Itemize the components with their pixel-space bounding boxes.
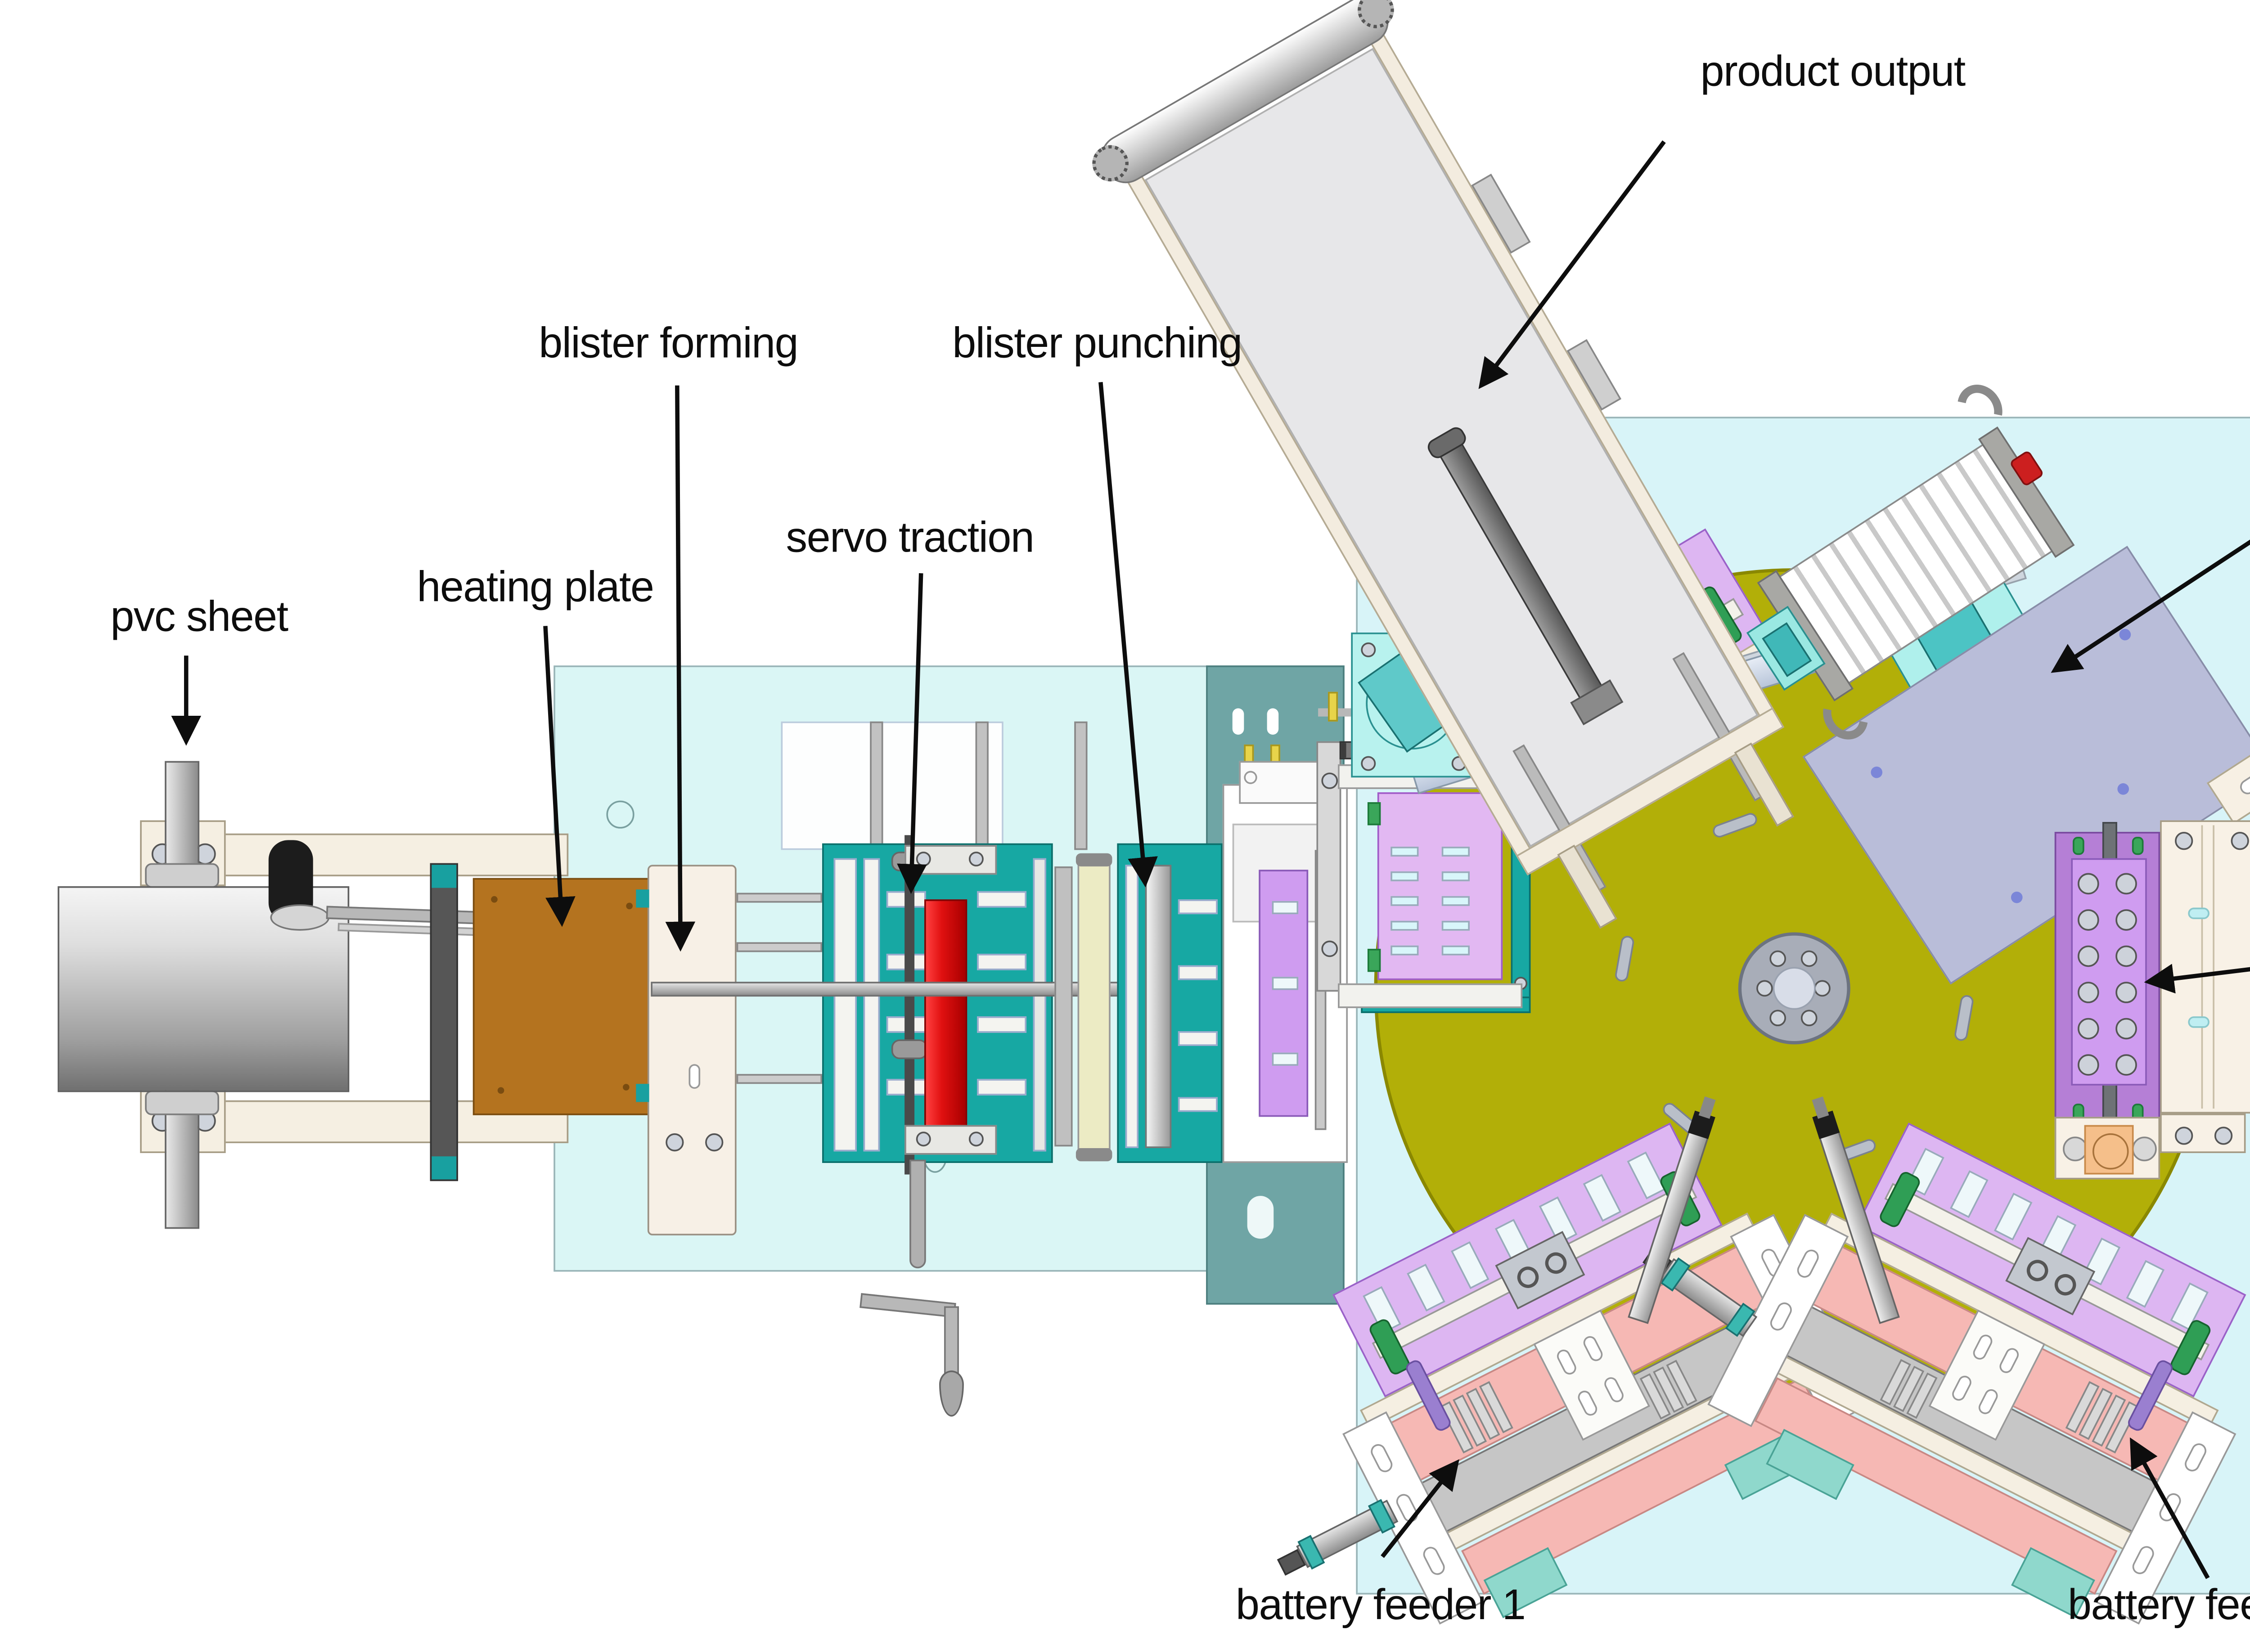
crank-handle [857,1292,972,1423]
label-battery-feeder-2: battery feeder2 [2068,1583,2250,1626]
forming-plate-clip [636,889,649,907]
forming-plate-clip [636,1084,649,1102]
storage-frame [2160,820,2250,1113]
punch-roller [1145,865,1172,1148]
shaft-flange [145,863,219,888]
outfeed-hole [1244,771,1257,784]
label-pvc-sheet: pvc sheet [110,595,288,637]
left-station-nest [1377,792,1503,980]
tie-rod [737,942,822,952]
machine-diagram: pvc sheet heating plate blister forming … [0,0,2250,1652]
band-slot [1233,708,1244,735]
guide-pulley [270,904,329,931]
label-heating-plate: heating plate [417,565,653,608]
idler-roller [1054,866,1072,1146]
green-pin [2073,837,2084,855]
storage-base-ext [2160,1113,2245,1153]
connector-pin [1328,692,1338,722]
label-servo-traction: servo traction [786,516,1034,558]
paper-card-storage [2055,832,2160,1125]
label-blister-punching: blister punching [952,321,1242,364]
support-post [976,722,989,850]
support-post [870,722,883,850]
turntable-hub [1738,932,1850,1044]
green-pad [1368,802,1381,825]
green-pin [2132,837,2144,855]
shaft-flange [145,1091,219,1115]
hand-shaft [909,1160,926,1269]
hub-center-hole [1773,967,1816,1010]
servo-shaft [904,835,914,1174]
green-pad [1368,949,1381,972]
orange-block [2084,1125,2134,1175]
storage-base [2055,1117,2160,1179]
forming-plate [648,865,737,1235]
punching-station [1117,844,1222,1163]
servo-traction-roller [924,899,967,1150]
outfeed-nest-purple [1259,870,1308,1117]
label-battery-feeder-1: battery feeder 1 [1236,1583,1525,1626]
label-blister-forming: blister forming [539,321,798,364]
label-product-output: product output [1701,49,1965,92]
support-post [1074,722,1087,850]
film-roller-yellow [1078,863,1111,1150]
table-band-bottom [1206,1153,1345,1305]
tie-rod [737,1074,822,1084]
band-slot [1247,1196,1274,1239]
table-hole [606,800,634,828]
guide-roller-teal [430,863,458,1181]
forming-station [822,844,1053,1163]
heating-plate [473,878,652,1115]
left-station-rail [1338,983,1522,1008]
tie-rod [737,893,822,902]
table-cutout [781,722,1003,850]
band-slot [1267,708,1279,735]
